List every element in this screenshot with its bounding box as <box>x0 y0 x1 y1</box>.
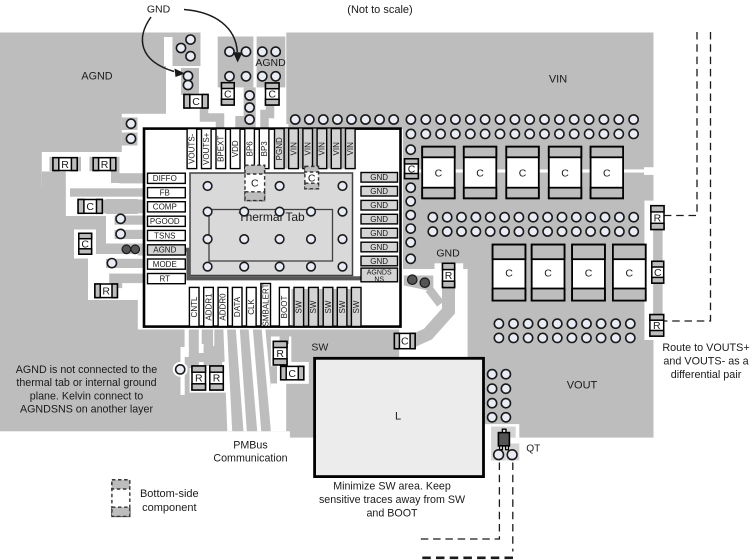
svg-text:PGOOD: PGOOD <box>150 217 180 226</box>
svg-text:AGND is not connected to the: AGND is not connected to the <box>16 364 157 376</box>
svg-text:C: C <box>81 238 89 250</box>
svg-text:SW: SW <box>324 300 333 313</box>
svg-text:R: R <box>61 159 69 171</box>
svg-text:SW: SW <box>338 300 347 313</box>
svg-text:GND: GND <box>436 248 460 260</box>
svg-text:C: C <box>308 172 316 184</box>
svg-text:and BOOT: and BOOT <box>366 507 418 519</box>
svg-text:FB: FB <box>160 189 170 198</box>
svg-text:C: C <box>603 167 611 179</box>
svg-text:AGND: AGND <box>153 246 176 255</box>
svg-text:VOUTS+: VOUTS+ <box>202 132 211 165</box>
svg-text:C: C <box>585 267 593 279</box>
svg-text:COMP: COMP <box>153 203 177 212</box>
svg-text:Communication: Communication <box>213 453 287 465</box>
svg-text:SMBALERT: SMBALERT <box>262 283 271 326</box>
svg-text:R: R <box>654 212 662 224</box>
svg-text:CNTL: CNTL <box>190 296 199 317</box>
svg-text:BOOT: BOOT <box>280 296 289 319</box>
svg-text:C: C <box>654 267 662 279</box>
svg-text:PMBus: PMBus <box>233 439 267 451</box>
svg-text:AGNDS: AGNDS <box>367 269 392 276</box>
svg-text:Minimize SW area. Keep: Minimize SW area. Keep <box>333 481 451 493</box>
svg-text:R: R <box>213 373 221 385</box>
svg-text:C: C <box>224 89 232 101</box>
svg-text:R: R <box>276 348 284 360</box>
svg-text:C: C <box>86 201 94 213</box>
svg-text:VIN: VIN <box>346 142 355 156</box>
svg-text:AGND: AGND <box>255 57 286 69</box>
svg-text:C: C <box>251 178 259 190</box>
svg-text:QT: QT <box>526 443 540 454</box>
svg-text:C: C <box>519 167 527 179</box>
svg-text:VIN: VIN <box>332 142 341 156</box>
svg-text:VOUTS-: VOUTS- <box>188 133 197 164</box>
svg-text:AGND: AGND <box>81 71 112 83</box>
svg-text:CLK: CLK <box>247 299 256 315</box>
svg-text:R: R <box>653 320 661 332</box>
svg-text:C: C <box>268 89 276 101</box>
svg-text:VIN: VIN <box>549 74 567 86</box>
svg-text:NS: NS <box>374 276 384 283</box>
svg-text:VIN: VIN <box>289 142 298 156</box>
svg-text:GND: GND <box>147 4 171 16</box>
svg-text:BP6: BP6 <box>245 141 254 157</box>
svg-text:ADDR0: ADDR0 <box>219 293 228 321</box>
svg-text:C: C <box>288 368 296 380</box>
svg-text:BPEXT: BPEXT <box>217 136 226 162</box>
svg-text:GND: GND <box>370 215 388 224</box>
svg-text:Bottom-side: Bottom-side <box>140 488 199 500</box>
svg-text:C: C <box>192 96 200 108</box>
svg-text:GND: GND <box>370 187 388 196</box>
svg-text:VDD: VDD <box>231 140 240 157</box>
svg-text:PGND: PGND <box>275 137 284 160</box>
svg-text:C: C <box>401 336 409 348</box>
svg-text:MODE: MODE <box>153 260 177 269</box>
svg-text:plane. Kelvin connect to: plane. Kelvin connect to <box>30 390 144 402</box>
svg-text:TSNS: TSNS <box>154 231 175 240</box>
svg-text:ADDR1: ADDR1 <box>204 293 213 321</box>
svg-text:differential pair: differential pair <box>671 369 742 381</box>
svg-text:C: C <box>435 167 443 179</box>
svg-text:R: R <box>101 159 109 171</box>
svg-text:R: R <box>445 270 453 282</box>
svg-text:DATA: DATA <box>233 296 242 317</box>
svg-text:Route to VOUTS+: Route to VOUTS+ <box>662 342 749 354</box>
svg-text:C: C <box>505 267 513 279</box>
svg-text:and VOUTS- as a: and VOUTS- as a <box>663 356 748 368</box>
svg-text:L: L <box>395 411 401 423</box>
svg-text:SW: SW <box>311 341 328 353</box>
svg-text:BP3: BP3 <box>260 141 269 157</box>
svg-text:C: C <box>544 267 552 279</box>
svg-text:VOUT: VOUT <box>567 380 598 392</box>
svg-text:sensitive traces away from SW: sensitive traces away from SW <box>319 494 466 506</box>
svg-text:C: C <box>476 167 484 179</box>
svg-text:AGNDSNS on another layer: AGNDSNS on another layer <box>20 404 154 416</box>
svg-text:GND: GND <box>370 229 388 238</box>
svg-text:SW: SW <box>295 300 304 313</box>
svg-text:C: C <box>626 267 634 279</box>
svg-text:VIN: VIN <box>318 142 327 156</box>
svg-text:C: C <box>408 163 416 175</box>
svg-text:RT: RT <box>160 274 171 283</box>
svg-text:VIN: VIN <box>304 142 313 156</box>
svg-text:thermal tab or internal ground: thermal tab or internal ground <box>16 377 156 389</box>
svg-text:GND: GND <box>370 257 388 266</box>
svg-text:SW: SW <box>352 300 361 313</box>
svg-text:component: component <box>142 502 196 514</box>
svg-text:(Not to scale): (Not to scale) <box>347 4 412 16</box>
svg-text:DIFFO: DIFFO <box>153 174 177 183</box>
svg-text:GND: GND <box>370 243 388 252</box>
svg-text:R: R <box>195 373 203 385</box>
svg-text:R: R <box>102 286 110 298</box>
svg-text:C: C <box>561 167 569 179</box>
svg-text:GND: GND <box>370 173 388 182</box>
svg-text:GND: GND <box>370 201 388 210</box>
svg-text:SW: SW <box>309 300 318 313</box>
